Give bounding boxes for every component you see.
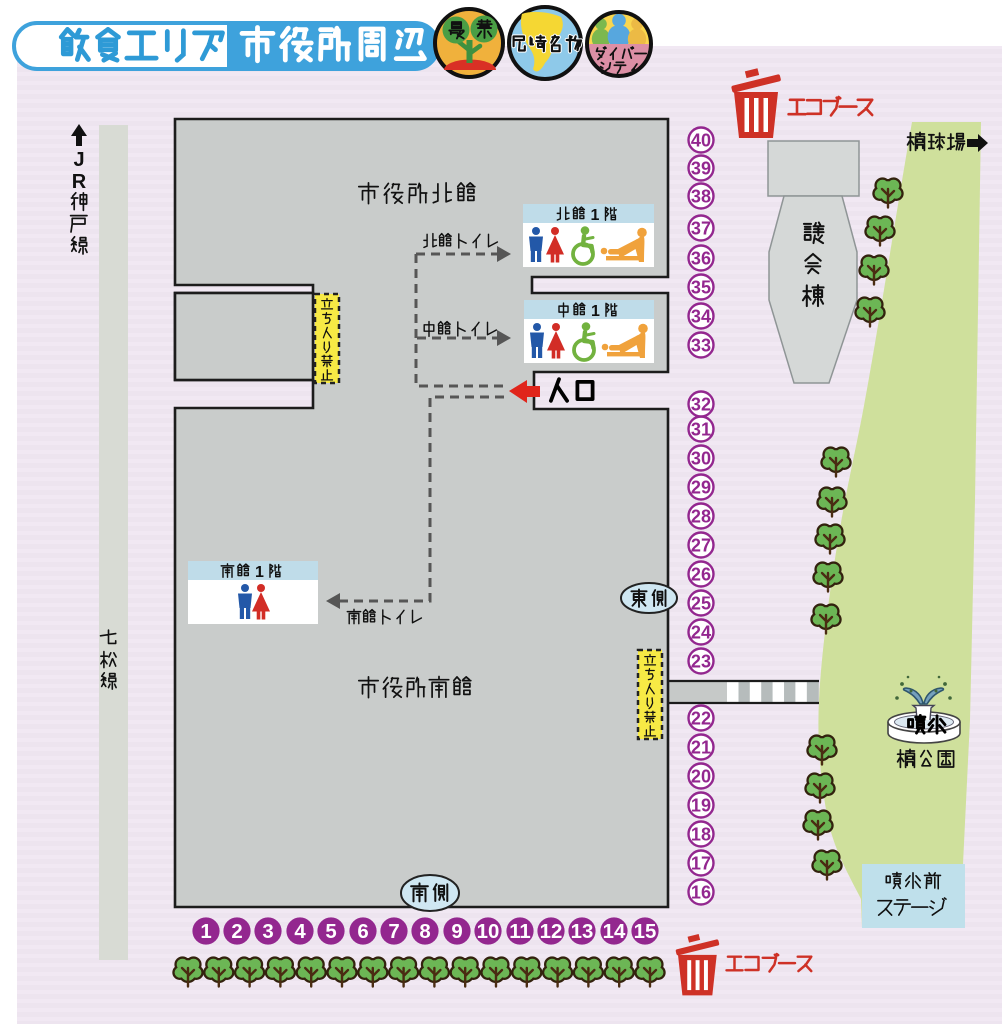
svg-text:34: 34 [691,307,711,327]
svg-text:38: 38 [691,187,711,207]
svg-text:23: 23 [691,652,711,672]
svg-text:39: 39 [691,159,711,179]
svg-text:37: 37 [691,219,711,239]
svg-text:1: 1 [591,207,600,224]
svg-text:36: 36 [691,249,711,269]
svg-text:18: 18 [691,825,711,845]
svg-text:33: 33 [691,336,711,356]
svg-text:12: 12 [540,921,563,943]
svg-text:27: 27 [691,536,711,556]
svg-text:40: 40 [691,131,711,151]
svg-text:7: 7 [388,921,399,943]
svg-text:1: 1 [255,564,264,581]
svg-text:32: 32 [691,395,711,415]
svg-text:8: 8 [419,921,430,943]
svg-text:28: 28 [691,507,711,527]
svg-text:19: 19 [691,796,711,816]
svg-text:20: 20 [691,767,711,787]
svg-text:4: 4 [294,921,306,943]
svg-text:10: 10 [477,921,500,943]
svg-text:16: 16 [691,883,711,903]
svg-text:35: 35 [691,278,711,298]
svg-text:29: 29 [691,478,711,498]
svg-text:24: 24 [691,623,711,643]
svg-text:1: 1 [200,921,211,943]
svg-text:22: 22 [691,709,711,729]
svg-text:9: 9 [451,921,462,943]
svg-text:13: 13 [571,921,594,943]
svg-text:5: 5 [325,921,336,943]
svg-text:25: 25 [691,594,711,614]
svg-text:17: 17 [691,854,711,874]
svg-text:R: R [72,171,87,193]
svg-text:21: 21 [691,738,711,758]
svg-text:26: 26 [691,565,711,585]
svg-text:15: 15 [634,921,657,943]
svg-text:11: 11 [509,921,531,943]
svg-text:31: 31 [691,420,711,440]
svg-text:J: J [73,149,84,171]
svg-text:3: 3 [262,921,273,943]
svg-text:1: 1 [591,303,600,320]
svg-text:2: 2 [231,921,242,943]
svg-text:30: 30 [691,449,711,469]
svg-text:14: 14 [603,921,626,943]
svg-text:6: 6 [357,921,368,943]
